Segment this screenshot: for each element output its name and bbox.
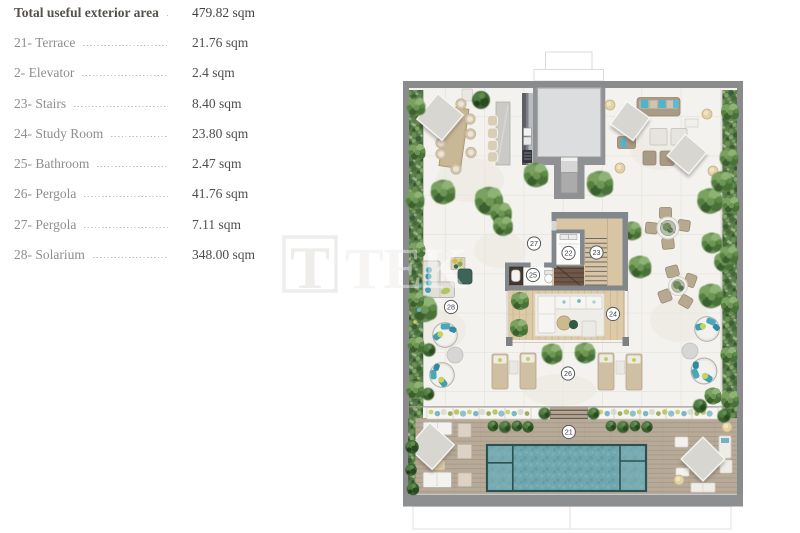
svg-text:27: 27 (530, 239, 538, 248)
svg-text:TEK: TEK (345, 236, 468, 301)
svg-text:T: T (290, 235, 330, 301)
svg-text:23: 23 (593, 248, 601, 257)
svg-text:28: 28 (447, 303, 455, 312)
svg-text:26: 26 (564, 369, 572, 378)
svg-text:22: 22 (565, 249, 573, 258)
svg-text:21: 21 (565, 428, 573, 437)
svg-text:25: 25 (529, 271, 537, 280)
svg-text:24: 24 (609, 310, 617, 319)
